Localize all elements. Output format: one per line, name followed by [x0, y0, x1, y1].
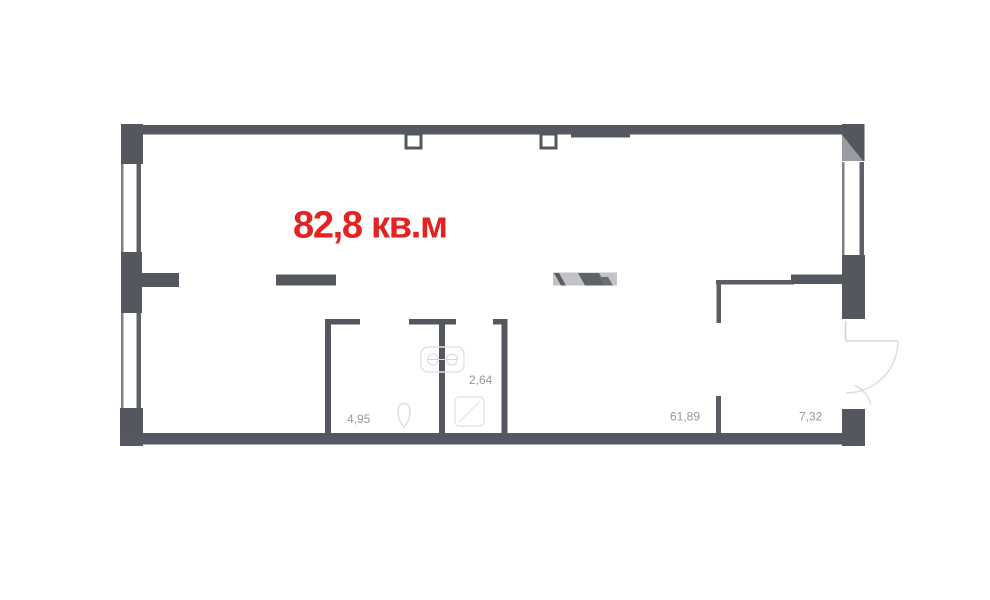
svg-text:2,64: 2,64 [469, 373, 493, 387]
svg-text:82,8 кв.м: 82,8 кв.м [293, 205, 447, 247]
svg-text:61,89: 61,89 [670, 410, 700, 424]
svg-text:4,95: 4,95 [347, 412, 371, 426]
svg-text:7,32: 7,32 [799, 410, 823, 424]
